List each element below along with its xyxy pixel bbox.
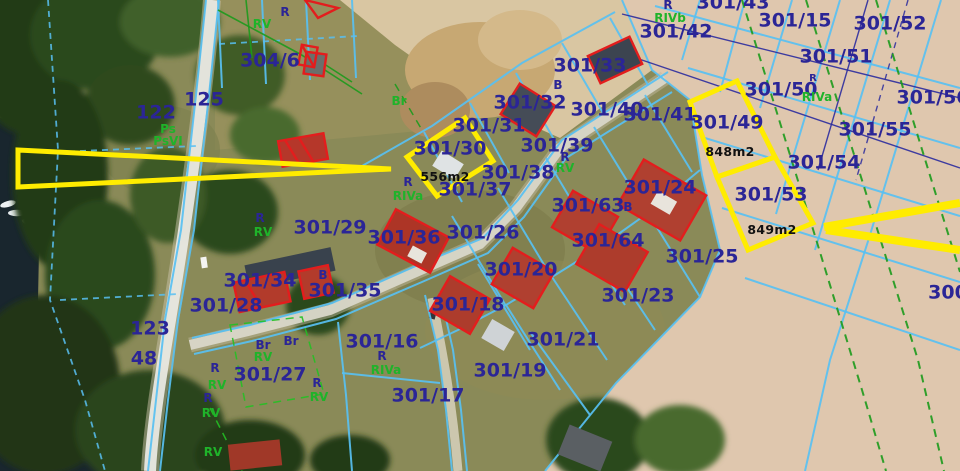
aerial-photo-layer xyxy=(0,0,960,471)
house-roof xyxy=(228,439,282,470)
map-canvas[interactable]: 301/43301/15301/52301/42301/51301/33301/… xyxy=(0,0,960,471)
